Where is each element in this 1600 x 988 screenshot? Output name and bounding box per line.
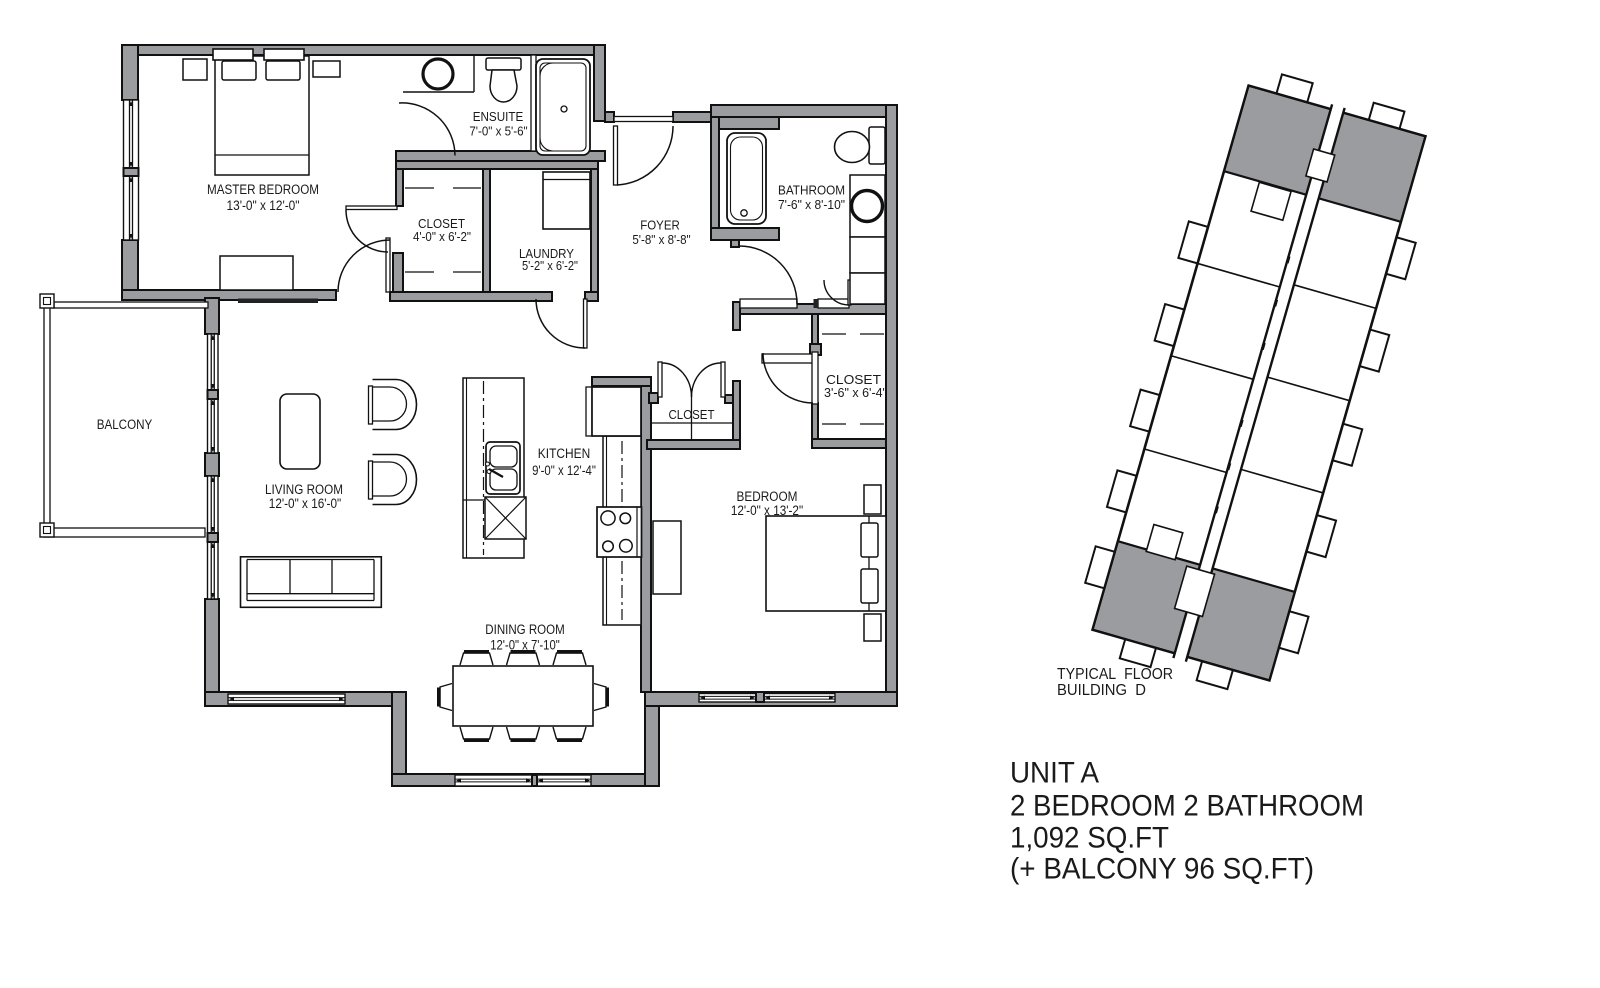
- svg-text:KITCHEN: KITCHEN: [538, 446, 590, 461]
- svg-text:13'-0" x 12'-0": 13'-0" x 12'-0": [227, 198, 300, 213]
- svg-text:BATHROOM: BATHROOM: [778, 184, 845, 198]
- svg-text:7'-6" x 8'-10": 7'-6" x 8'-10": [778, 198, 845, 212]
- svg-text:3'-6" x 6'-4": 3'-6" x 6'-4": [824, 385, 887, 400]
- svg-text:ENSUITE: ENSUITE: [473, 110, 524, 124]
- svg-text:7'-0" x 5'-6": 7'-0" x 5'-6": [469, 125, 527, 139]
- svg-text:2 BEDROOM 2 BATHROOM: 2 BEDROOM 2 BATHROOM: [1010, 790, 1364, 823]
- svg-text:5'-2" x 6'-2": 5'-2" x 6'-2": [522, 259, 578, 273]
- svg-text:CLOSET: CLOSET: [418, 217, 465, 231]
- svg-text:MASTER BEDROOM: MASTER BEDROOM: [207, 182, 319, 197]
- svg-text:1,092 SQ.FT: 1,092 SQ.FT: [1010, 822, 1169, 855]
- svg-text:5'-8" x 8'-8": 5'-8" x 8'-8": [632, 233, 690, 247]
- svg-text:(+ BALCONY 96 SQ.FT): (+ BALCONY 96 SQ.FT): [1010, 853, 1314, 886]
- svg-text:12'-0" x 7'-10": 12'-0" x 7'-10": [490, 638, 560, 653]
- svg-text:DINING ROOM: DINING ROOM: [485, 622, 564, 637]
- svg-text:BUILDING D: BUILDING D: [1057, 682, 1146, 699]
- svg-text:4'-0" x 6'-2": 4'-0" x 6'-2": [413, 230, 471, 244]
- svg-text:UNIT A: UNIT A: [1010, 757, 1099, 790]
- svg-text:FOYER: FOYER: [640, 219, 680, 233]
- svg-text:TYPICAL FLOOR: TYPICAL FLOOR: [1057, 666, 1173, 683]
- svg-text:BEDROOM: BEDROOM: [737, 489, 798, 504]
- svg-text:12'-0" x 13'-2": 12'-0" x 13'-2": [731, 503, 803, 518]
- svg-text:12'-0" x 16'-0": 12'-0" x 16'-0": [269, 496, 342, 511]
- svg-text:LIVING ROOM: LIVING ROOM: [265, 482, 343, 497]
- svg-text:BALCONY: BALCONY: [97, 417, 153, 432]
- svg-text:9'-0" x 12'-4": 9'-0" x 12'-4": [532, 463, 596, 478]
- svg-text:CLOSET: CLOSET: [669, 408, 715, 422]
